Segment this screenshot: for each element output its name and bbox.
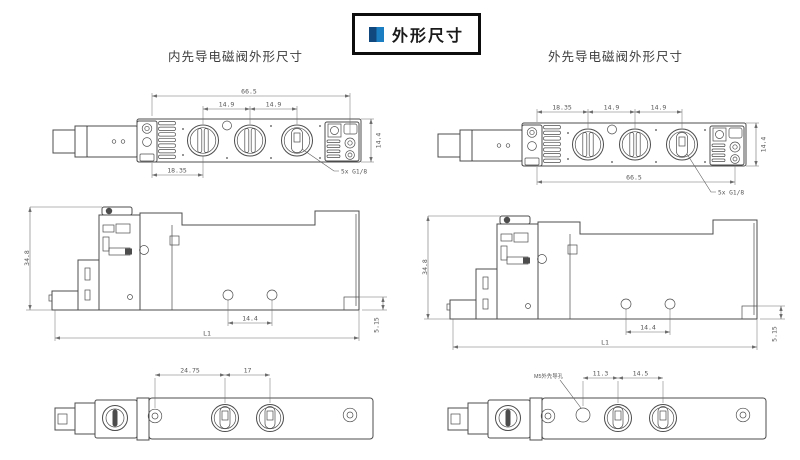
dim-offset: 18.35 <box>552 104 572 112</box>
dim-height: 34.8 <box>23 250 31 266</box>
dim-a: 24.75 <box>180 367 200 375</box>
internal-pilot-side-view: 34.8 14.4 L1 5.15 <box>23 207 387 341</box>
dim-width: 14.4 <box>760 137 768 153</box>
dim-width: 14.4 <box>375 133 383 149</box>
dim-pitch1: 14.9 <box>604 104 620 112</box>
external-pilot-top-view: 18.35 14.9 14.9 66.5 14.4 5x G1/8 <box>438 104 768 197</box>
dim-overall: 66.5 <box>626 174 642 182</box>
dimension-drawings: 66.5 14.9 14.9 18.35 14.4 5x G1/8 34.8 1… <box>0 0 800 460</box>
dim-hole-pitch: 14.4 <box>640 324 656 332</box>
internal-pilot-bottom-view: 24.75 17 <box>55 367 373 441</box>
page-root: { "legend": { "title": "外形尺寸" }, "left_s… <box>0 0 800 460</box>
external-pilot-bottom-view: M5外先导孔 11.3 14.5 <box>448 370 766 441</box>
dim-hole-pitch: 14.4 <box>242 315 258 323</box>
dim-pitch2: 14.9 <box>266 101 282 109</box>
external-pilot-side-view: 34.8 14.4 L1 5.15 <box>421 216 785 350</box>
dim-pitch1: 14.9 <box>219 101 235 109</box>
dim-step: 5.15 <box>771 326 779 342</box>
dim-pitch2: 14.9 <box>651 104 667 112</box>
pilot-hole-note: M5外先导孔 <box>534 372 564 380</box>
dim-height: 34.8 <box>421 259 429 275</box>
dim-length: L1 <box>601 339 609 347</box>
dim-b: 14.5 <box>633 370 649 378</box>
dim-offset: 18.35 <box>167 167 187 175</box>
dim-overall: 66.5 <box>241 88 257 96</box>
dim-a: 11.3 <box>593 370 609 378</box>
m5-pilot-hole <box>576 408 590 422</box>
internal-pilot-top-view: 66.5 14.9 14.9 18.35 14.4 5x G1/8 <box>53 88 383 179</box>
dim-b: 17 <box>244 367 252 375</box>
port-note: 5x G1/8 <box>341 169 367 176</box>
port-note: 5x G1/8 <box>718 190 744 197</box>
dim-step: 5.15 <box>373 317 381 333</box>
dim-length: L1 <box>203 330 211 338</box>
